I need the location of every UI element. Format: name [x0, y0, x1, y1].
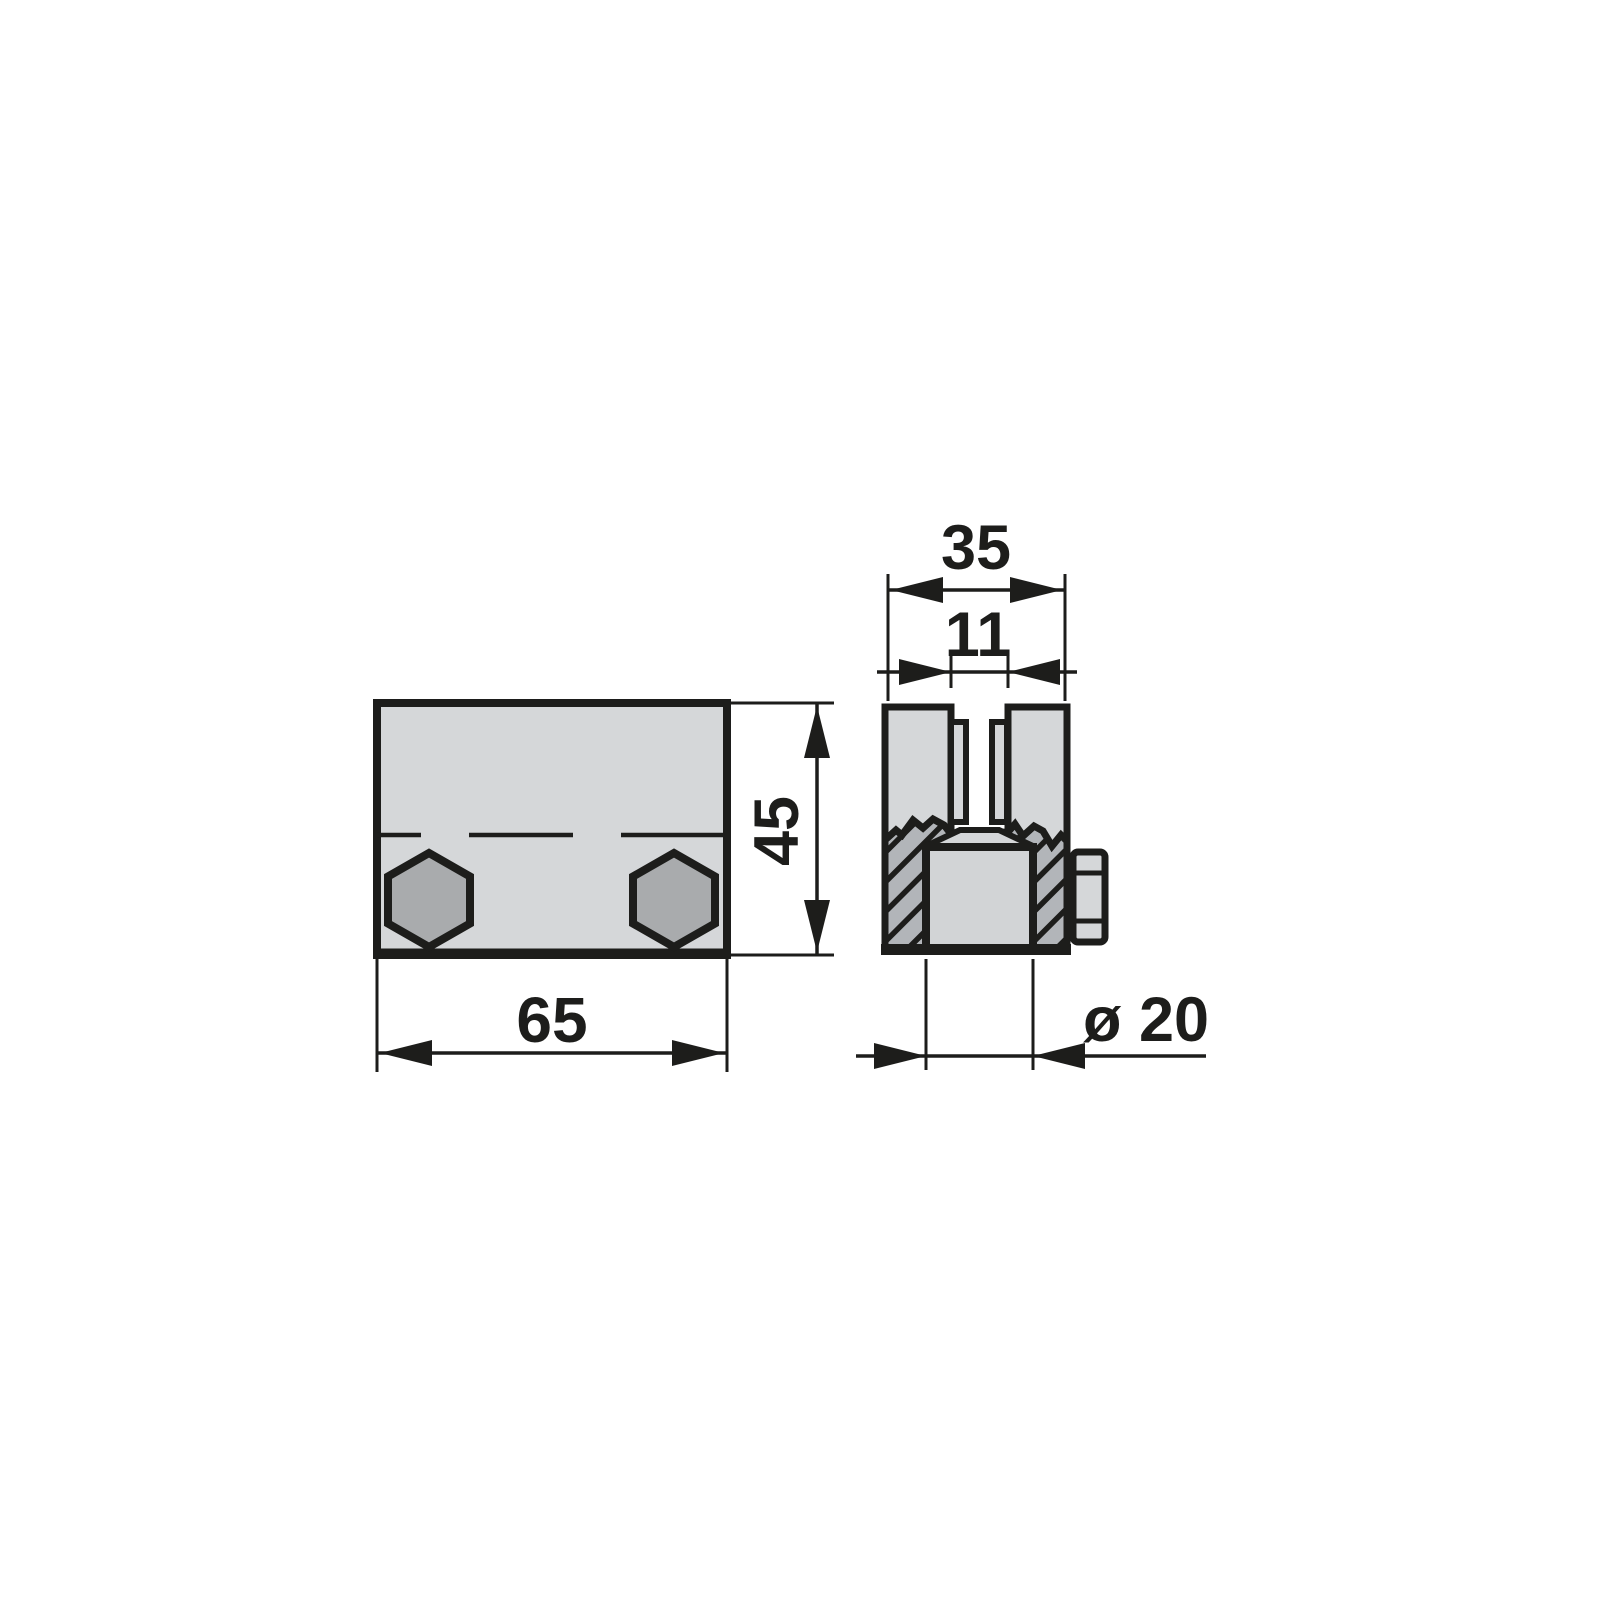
arrow-left-icon	[1008, 659, 1060, 685]
arrow-right-icon	[874, 1043, 926, 1069]
nut-body	[1073, 852, 1105, 942]
side-block-left	[885, 707, 951, 840]
dimension-65: 65	[377, 959, 727, 1072]
dim-label-45: 45	[742, 796, 812, 866]
dimension-45: 45	[731, 703, 834, 955]
arrow-down-icon	[804, 900, 830, 952]
dim-label-diameter-20: ø 20	[1083, 985, 1209, 1055]
side-bottom-edge	[881, 944, 1071, 955]
dimension-11: 11	[877, 600, 1077, 688]
side-tab-right	[992, 722, 1007, 822]
arrow-right-icon	[899, 659, 951, 685]
side-view	[881, 707, 1105, 955]
arrow-left-icon	[380, 1040, 432, 1066]
hex-bolt-left-icon	[388, 853, 470, 947]
arrow-up-icon	[804, 706, 830, 758]
front-view	[373, 703, 731, 955]
dim-label-35: 35	[941, 513, 1011, 583]
arrow-left-icon	[1033, 1043, 1085, 1069]
drawing-canvas: 65 45 35 11 ø 20	[0, 0, 1600, 1600]
side-tab-left	[951, 722, 966, 822]
technical-drawing: 65 45 35 11 ø 20	[0, 0, 1600, 1600]
side-block-right	[1008, 707, 1067, 846]
arrow-right-icon	[672, 1040, 724, 1066]
dimension-diameter-20: ø 20	[856, 959, 1209, 1070]
side-nut	[1065, 852, 1105, 942]
arrow-right-icon	[1010, 577, 1062, 603]
dim-label-65: 65	[516, 984, 587, 1056]
side-pin	[926, 847, 1033, 950]
dim-label-11: 11	[945, 600, 1012, 670]
arrow-left-icon	[891, 577, 943, 603]
hex-bolt-right-icon	[633, 853, 715, 947]
